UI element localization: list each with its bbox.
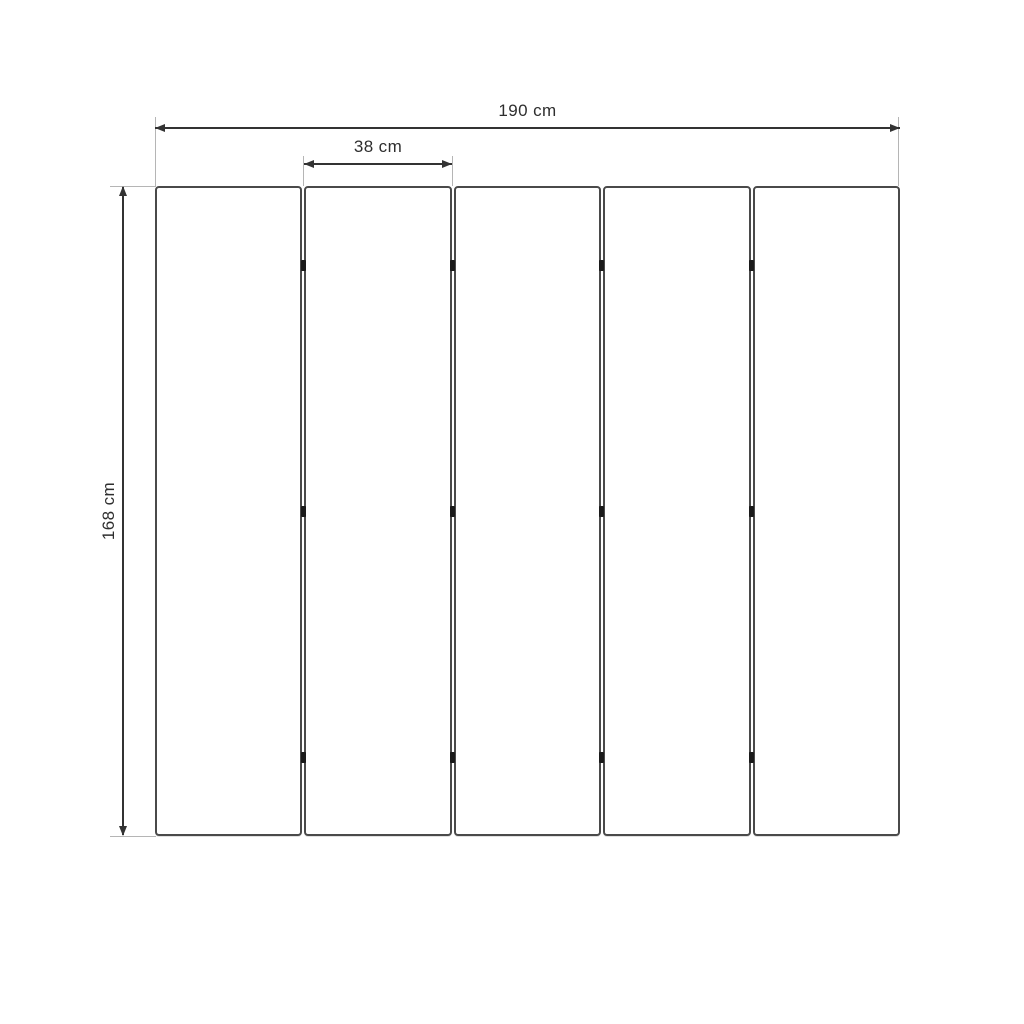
hinge-icon	[301, 506, 306, 517]
dimension-line-height	[122, 187, 124, 835]
hinge-icon	[301, 260, 306, 271]
dimension-line-panel-width	[304, 163, 452, 165]
hinge-icon	[450, 506, 455, 517]
arrowhead-left-icon	[304, 160, 314, 168]
hinge-icon	[599, 752, 604, 763]
hinge-icon	[749, 260, 754, 271]
hinge-icon	[749, 506, 754, 517]
panel-1	[155, 186, 302, 836]
hinge-icon	[450, 752, 455, 763]
total-width-label: 190 cm	[155, 101, 900, 121]
panel-5	[753, 186, 900, 836]
extension-line-height-top	[110, 186, 156, 187]
panel-3	[454, 186, 601, 836]
panel-4	[603, 186, 750, 836]
hinge-icon	[599, 506, 604, 517]
dimension-drawing: 190 cm 38 cm 168 cm	[0, 0, 1024, 1024]
arrowhead-left-icon	[155, 124, 165, 132]
arrowhead-down-icon	[119, 826, 127, 836]
hinge-icon	[749, 752, 754, 763]
panel-width-label: 38 cm	[304, 137, 452, 157]
arrowhead-right-icon	[890, 124, 900, 132]
arrowhead-right-icon	[442, 160, 452, 168]
arrowhead-up-icon	[119, 186, 127, 196]
dimension-line-total-width	[155, 127, 900, 129]
hinge-icon	[599, 260, 604, 271]
extension-line-panel-right	[452, 156, 453, 186]
panel-2	[304, 186, 451, 836]
height-label: 168 cm	[99, 482, 119, 540]
hinge-icon	[301, 752, 306, 763]
hinge-icon	[450, 260, 455, 271]
extension-line-height-bottom	[110, 836, 156, 837]
panel-group	[155, 186, 900, 836]
